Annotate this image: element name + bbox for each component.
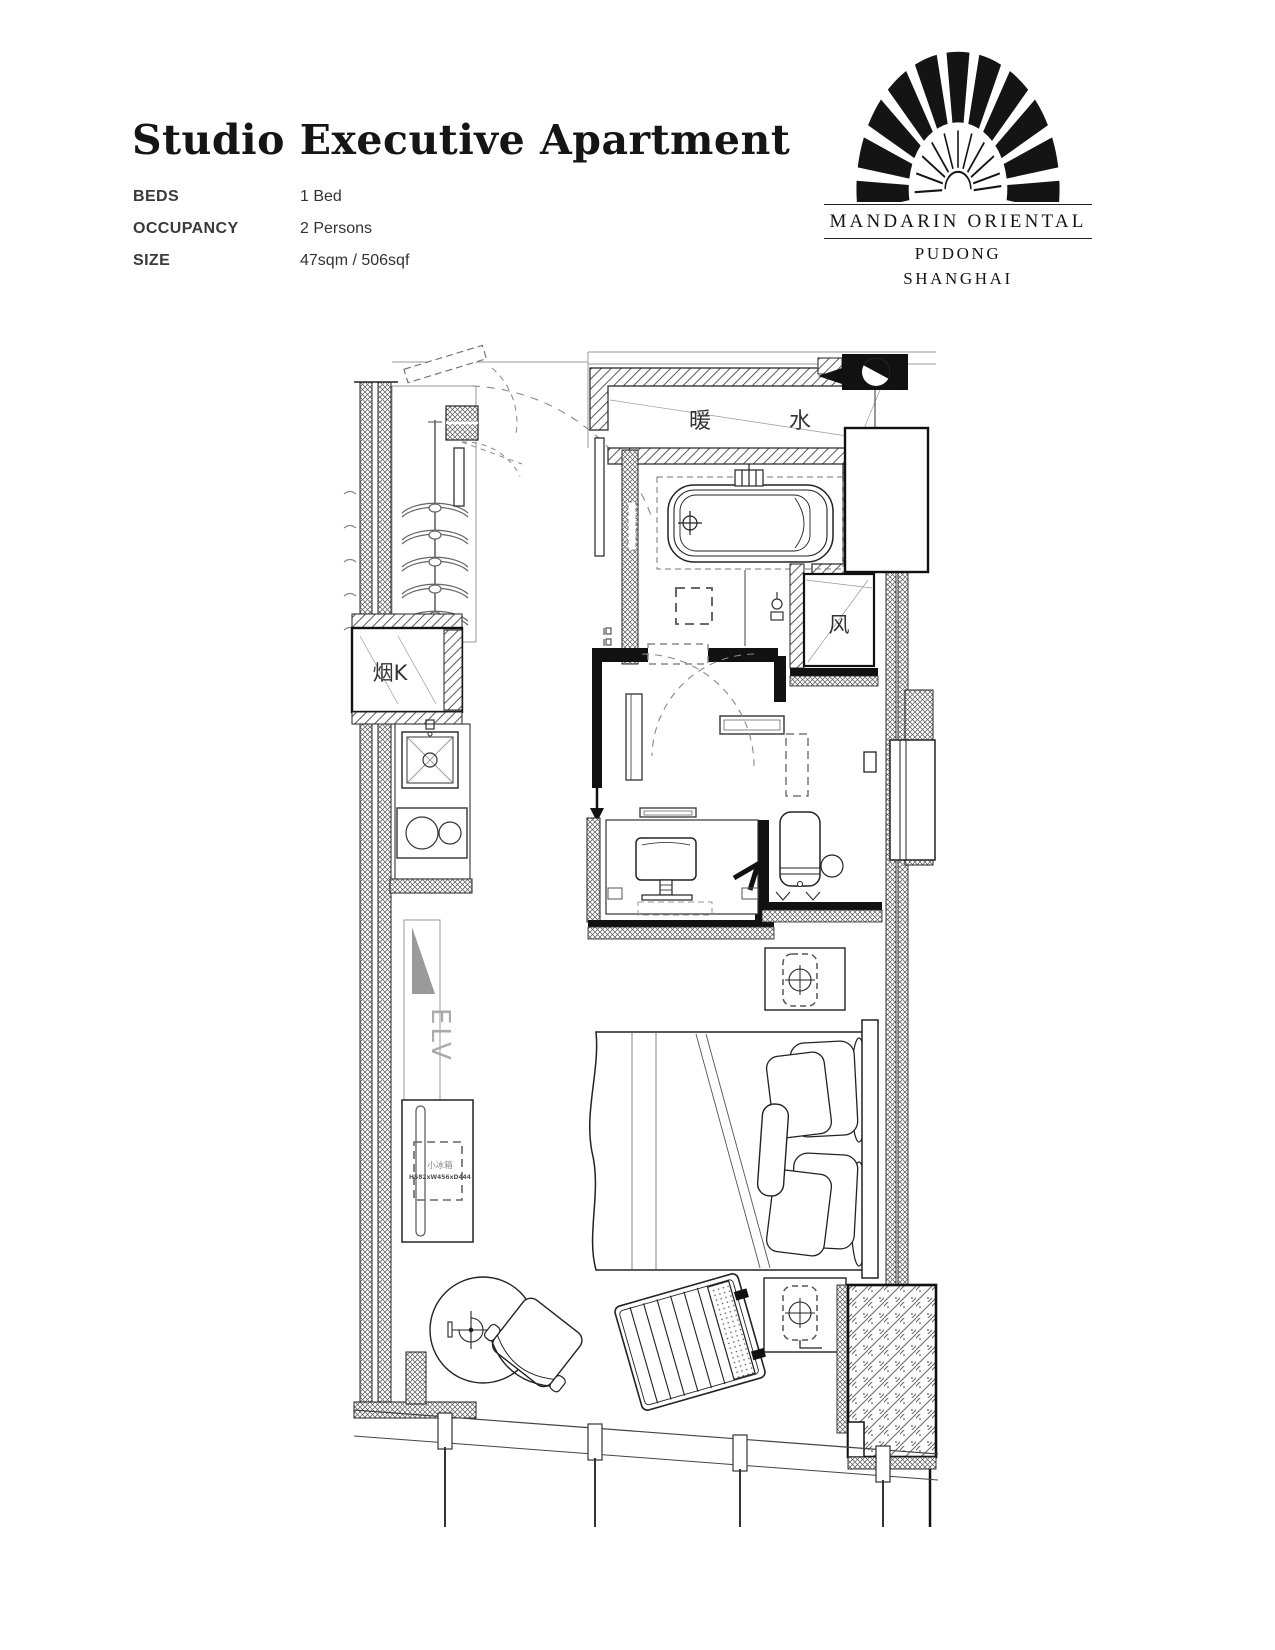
bathroom-left-wall — [622, 450, 638, 664]
door-swing-arc-1 — [642, 654, 754, 766]
nightstand-top — [765, 948, 845, 1010]
exhaust-fan-symbol — [818, 353, 908, 428]
entry-door-leaf — [404, 345, 487, 382]
wall-faucet — [771, 592, 783, 620]
bathroom-wall-stub-left — [592, 648, 648, 662]
tub-faucet — [735, 464, 763, 486]
elevator-label: ELV — [425, 1008, 455, 1063]
spec-row-occupancy: OCCUPANCY2 Persons — [133, 218, 409, 250]
door-swing-arc-2 — [652, 654, 754, 756]
right-window — [890, 740, 935, 860]
page-title: Studio Executive Apartment — [132, 116, 790, 164]
floor-plan-drawing: 烟K ELV — [340, 342, 940, 1527]
vestibule — [590, 654, 808, 822]
bolster-cushion — [757, 1103, 789, 1197]
door-leaf-stored — [626, 694, 642, 780]
spec-value-beds: 1 Bed — [300, 188, 342, 205]
luggage-bench — [720, 716, 784, 734]
nightstand-bottom — [764, 1278, 846, 1352]
logo-city-line1: PUDONG — [824, 241, 1092, 266]
toilet-paper-holder — [864, 752, 876, 772]
logo-city-line2: SHANGHAI — [824, 266, 1092, 291]
riser-duct — [595, 438, 604, 556]
fan-icon — [842, 44, 1074, 202]
spec-value-occupancy: 2 Persons — [300, 220, 372, 237]
bathtub — [657, 464, 843, 569]
elevator-shaft: ELV — [404, 920, 455, 1102]
air-shaft: 风 — [790, 564, 878, 686]
minibar-door-panel — [416, 1106, 425, 1236]
fact-sheet-page: Studio Executive Apartment BEDS1 Bed OCC… — [0, 0, 1275, 1650]
spec-label-beds: BEDS — [133, 186, 300, 208]
wall-niche — [628, 502, 636, 550]
lounge-chair — [614, 1271, 772, 1411]
kitchen-exhaust-shaft: 烟K — [352, 614, 462, 724]
logo-brand-text: MANDARIN ORIENTAL — [824, 207, 1092, 236]
desk-shelf — [640, 808, 696, 817]
entry-closet — [392, 345, 652, 642]
spec-row-beds: BEDS1 Bed — [133, 186, 409, 218]
bathroom-door-opening — [648, 644, 708, 664]
duct-water-label: 水 — [789, 409, 811, 434]
spec-row-size: SIZE47sqm / 506sqf — [133, 250, 409, 282]
window-mullions — [438, 1413, 890, 1527]
corridor-wall — [592, 660, 602, 788]
air-shaft-label: 风 — [829, 613, 850, 637]
toilet-door-opening — [786, 734, 808, 796]
desk-room — [587, 808, 774, 939]
concrete-column — [837, 1285, 936, 1527]
hotel-logo: MANDARIN ORIENTAL PUDONG SHANGHAI — [824, 44, 1092, 291]
spec-label-occupancy: OCCUPANCY — [133, 218, 300, 240]
minibar-cabinet: 小冰箱 H582xW456xD444 — [402, 1100, 473, 1242]
minibar-dimensions: H582xW456xD444 — [409, 1174, 471, 1181]
bed — [590, 1020, 878, 1278]
sitting-area — [430, 1271, 771, 1411]
logo-rule-top — [824, 204, 1092, 205]
closet-door-leaf — [454, 448, 464, 506]
entry-door-swing-arc — [492, 368, 517, 434]
facade-louver-ticks — [344, 492, 356, 631]
bathroom-wall-stub-right — [708, 648, 778, 662]
toilet — [776, 812, 843, 900]
minibar-label: 小冰箱 — [427, 1160, 453, 1171]
utility-shaft-box — [845, 428, 928, 572]
spec-value-size: 47sqm / 506sqf — [300, 252, 409, 269]
spec-label-size: SIZE — [133, 250, 300, 272]
kitchenette — [390, 720, 472, 893]
toilet-room — [762, 752, 882, 922]
spec-table: BEDS1 Bed OCCUPANCY2 Persons SIZE47sqm /… — [133, 186, 409, 282]
kitchen-exhaust-label: 烟K — [373, 661, 409, 685]
headboard — [862, 1020, 878, 1278]
left-exterior-wall — [344, 382, 398, 1417]
logo-rule-bottom — [824, 238, 1092, 239]
toilet-flush-control — [821, 855, 843, 877]
duct-heating-label: 暖 — [689, 409, 711, 434]
partition-stub — [774, 656, 786, 702]
floor-plan: 烟K ELV — [340, 342, 940, 1527]
shower-area — [676, 588, 712, 624]
